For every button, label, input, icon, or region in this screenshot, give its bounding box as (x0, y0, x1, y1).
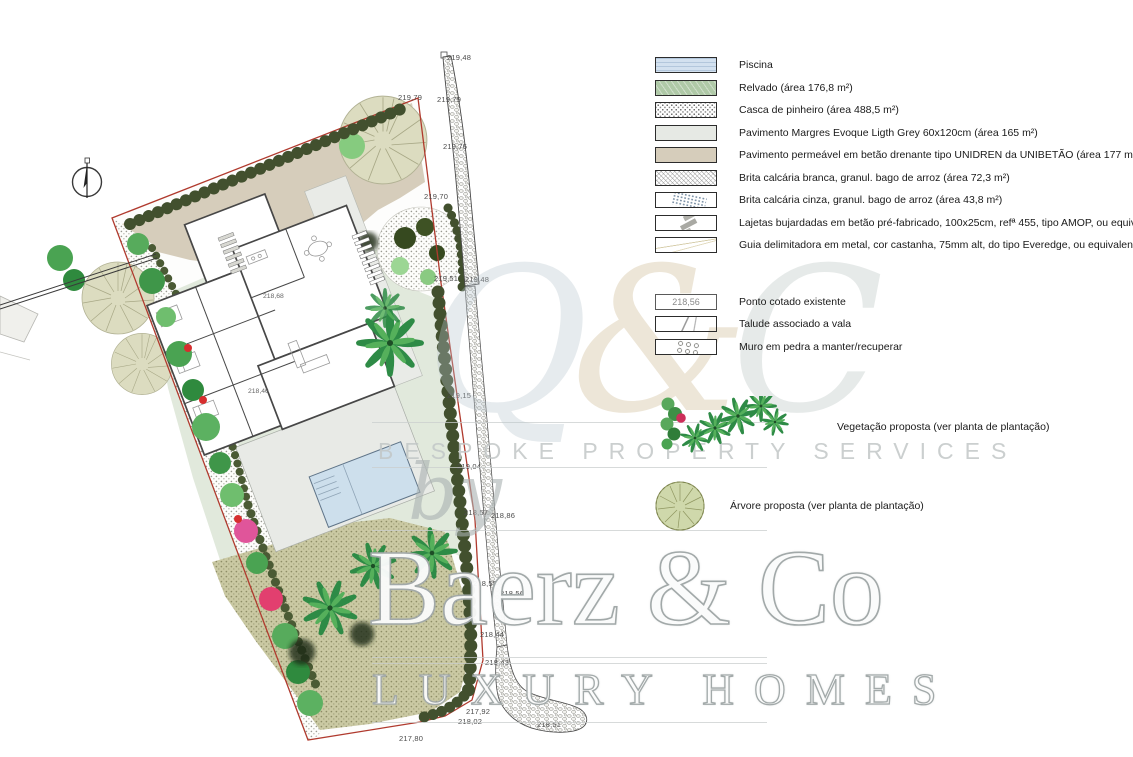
guia-swatch (655, 237, 717, 253)
neighbour-structures (0, 296, 38, 360)
lajetas-swatch (655, 215, 717, 231)
ponto-label: Ponto cotado existente (739, 296, 846, 308)
casca-swatch (655, 102, 717, 118)
legend-tree-label: Árvore proposta (ver planta de plantação… (730, 500, 924, 512)
legend-row: Brita calcária cinza, granul. bago de ar… (655, 192, 1133, 209)
guia-label: Guia delimitadora em metal, cor castanha… (739, 239, 1133, 251)
talude-label: Talude associado a vala (739, 318, 851, 330)
legend-row: Pavimento Margres Evoque Ligth Grey 60x1… (655, 125, 1133, 142)
brita-cinza-swatch (655, 192, 717, 208)
margres-label: Pavimento Margres Evoque Ligth Grey 60x1… (739, 127, 1038, 139)
legend-row: Relvado (área 176,8 m²) (655, 80, 1133, 97)
legend-vegetation-row: Vegetação proposta (ver planta de planta… (643, 396, 1049, 458)
legend-vegetation-label: Vegetação proposta (ver planta de planta… (837, 421, 1049, 433)
vegetation-sample-icon (643, 396, 793, 458)
house-elevation-lower: 218,46 (248, 388, 269, 395)
margres-swatch (655, 125, 717, 141)
permeavel-label: Pavimento permeável em betão drenante ti… (739, 149, 1133, 161)
permeavel-swatch (655, 147, 717, 163)
site-plan-sheet: 218,68 218,46 219,48219,79219,79219,7621… (0, 0, 1133, 757)
brita-branca-swatch (655, 170, 717, 186)
legend-row: 218,56 Ponto cotado existente (655, 294, 1133, 311)
house-elevation-upper: 218,68 (263, 293, 284, 300)
tree-sample-icon (652, 478, 708, 534)
lajetas-label: Lajetas bujardadas em betão pré-fabricad… (739, 217, 1133, 229)
ponto-swatch: 218,56 (655, 294, 717, 310)
brita-cinza-label: Brita calcária cinza, granul. bago de ar… (739, 194, 1002, 206)
legend-row: Brita calcária branca, granul. bago de a… (655, 170, 1133, 187)
muro-swatch (655, 339, 717, 355)
legend-row: Piscina (655, 57, 1133, 74)
legend-row: Casca de pinheiro (área 488,5 m²) (655, 102, 1133, 119)
legend-materials: Piscina Relvado (área 176,8 m²) Casca de… (655, 57, 1133, 254)
legend-tree-row: Árvore proposta (ver planta de plantação… (652, 478, 924, 534)
talude-swatch (655, 316, 717, 332)
legend-annotations: 218,56 Ponto cotado existente Talude ass… (655, 294, 1133, 356)
north-arrow-icon (73, 158, 102, 198)
legend-row: Guia delimitadora em metal, cor castanha… (655, 237, 1133, 254)
legend: Piscina Relvado (área 176,8 m²) Casca de… (655, 57, 1133, 361)
muro-label: Muro em pedra a manter/recuperar (739, 341, 902, 353)
brita-branca-label: Brita calcária branca, granul. bago de a… (739, 172, 1010, 184)
legend-row: Muro em pedra a manter/recuperar (655, 339, 1133, 356)
casca-label: Casca de pinheiro (área 488,5 m²) (739, 104, 899, 116)
relvado-swatch (655, 80, 717, 96)
piscina-label: Piscina (739, 59, 773, 71)
legend-row: Pavimento permeável em betão drenante ti… (655, 147, 1133, 164)
piscina-swatch (655, 57, 717, 73)
relvado-label: Relvado (área 176,8 m²) (739, 82, 853, 94)
legend-row: Lajetas bujardadas em betão pré-fabricad… (655, 215, 1133, 232)
legend-row: Talude associado a vala (655, 316, 1133, 333)
